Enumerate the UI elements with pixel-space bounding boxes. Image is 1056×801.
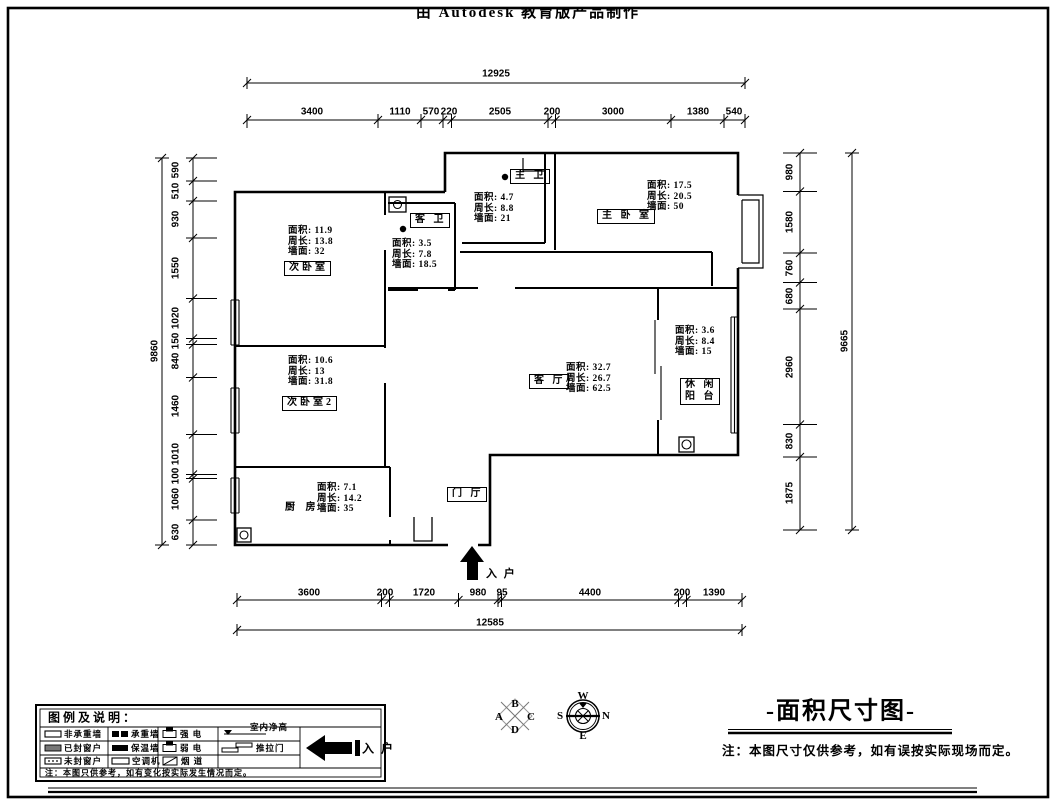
- bedroom2-label: 次卧室: [284, 261, 331, 276]
- dim-right-segment: 680: [785, 288, 796, 305]
- dim-right-segment: 760: [785, 260, 796, 277]
- dim-right-segment: 980: [785, 164, 796, 181]
- living-room-stats: 面积: 32.7 周长: 26.7 墙面: 62.5: [566, 363, 611, 395]
- dim-left-segment: 1060: [171, 488, 182, 510]
- sheet-title: -面积尺寸图-: [766, 691, 916, 726]
- dim-top-segment: 2505: [489, 107, 511, 118]
- master-bath-label: 主 卫: [510, 169, 550, 184]
- legend-item: 强 电: [180, 728, 202, 740]
- legend-item: 承重墙: [131, 728, 160, 740]
- quadrant-letter-b: B: [511, 698, 518, 710]
- legend-item: 非承重墙: [64, 728, 102, 740]
- foyer-label: 门 厅: [447, 487, 487, 502]
- legend-entry-arrow-icon: [306, 735, 360, 761]
- sealed-window-icon: [45, 745, 61, 751]
- legend-item: 已封窗户: [64, 742, 102, 754]
- legend-item: 保温墙: [131, 742, 160, 754]
- legend-item: 烟 道: [181, 755, 203, 767]
- drawing-sheet: 由 Autodesk 教育版产品制作 面积: 11.9 周长: 13.8 墙面:…: [0, 0, 1056, 801]
- dim-top-segment: 220: [441, 107, 458, 118]
- dim-top-segment: 570: [423, 107, 440, 118]
- bedroom2-stats: 面积: 11.9 周长: 13.8 墙面: 32: [288, 226, 333, 258]
- dim-left-segment: 630: [171, 524, 182, 541]
- guest-bath-stats: 面积: 3.5 周长: 7.8 墙面: 18.5: [392, 239, 437, 271]
- kitchen-stats: 面积: 7.1 周长: 14.2 墙面: 35: [317, 483, 362, 515]
- ac-unit-icon: [112, 758, 129, 764]
- insulated-wall-icon: [112, 745, 128, 751]
- quadrant-letter-d: D: [511, 724, 519, 736]
- entry-label: 入 户: [486, 565, 517, 581]
- dim-top-segment: 3400: [301, 107, 323, 118]
- dim-top-segment: 3000: [602, 107, 624, 118]
- dim-left-segment: 590: [171, 162, 182, 179]
- dim-left-segment: 100: [171, 468, 182, 485]
- dim-bottom-segment: 200: [377, 588, 394, 599]
- dim-right-segment: 2960: [785, 356, 796, 378]
- master-bath-stats: 面积: 4.7 周长: 8.8 墙面: 21: [474, 193, 514, 225]
- strong-electric-icon: [163, 728, 176, 738]
- legend-item: 空调机: [132, 755, 161, 767]
- dim-top-total: 12925: [482, 69, 510, 80]
- dim-left-segment: 1550: [171, 257, 182, 279]
- dim-top-segment: 200: [544, 107, 561, 118]
- dim-bottom-segment: 95: [496, 588, 507, 599]
- dim-bottom-segment: 4400: [579, 588, 601, 599]
- nonbearing-wall-icon: [45, 731, 61, 737]
- flue-icon: [163, 757, 177, 765]
- compass-letter-w: W: [578, 690, 589, 702]
- legend-item: 未封窗户: [64, 755, 102, 767]
- bedroom3-stats: 面积: 10.6 周长: 13 墙面: 31.8: [288, 356, 333, 388]
- weak-electric-icon: [163, 742, 176, 752]
- dim-top-segment: 1110: [389, 107, 410, 118]
- dim-right-segment: 1875: [785, 482, 796, 504]
- legend-item: 弱 电: [180, 742, 202, 754]
- dim-left-segment: 1010: [171, 443, 182, 465]
- dim-bottom-total: 12585: [476, 618, 504, 629]
- dim-left-segment: 930: [171, 211, 182, 228]
- dim-bottom-segment: 1720: [413, 588, 435, 599]
- sliding-door-icon: [222, 743, 252, 752]
- legend-note: 注：本图只供参考，如有变化按实际发生情况而定。: [45, 768, 252, 779]
- dim-left-segment: 510: [171, 183, 182, 200]
- dim-left-total: 9860: [150, 340, 161, 362]
- compass-letter-e: E: [579, 730, 586, 742]
- floorplan-linework: [0, 0, 1056, 801]
- dim-right-segment: 1580: [785, 211, 796, 233]
- kitchen-label: 厨 房: [285, 498, 320, 513]
- dimension-lines: [155, 77, 859, 636]
- unsealed-window-icon: [45, 758, 61, 764]
- dim-right-segment: 830: [785, 433, 796, 450]
- dim-top-segment: 540: [726, 107, 743, 118]
- autodesk-banner: 由 Autodesk 教育版产品制作: [416, 8, 640, 20]
- entry-arrow: [460, 546, 484, 580]
- dim-top-segment: 1380: [687, 107, 709, 118]
- legend-entry-label: 入 户: [362, 740, 395, 757]
- dim-bottom-segment: 1390: [703, 588, 725, 599]
- legend-item: 推拉门: [256, 742, 285, 754]
- dim-bottom-segment: 200: [674, 588, 691, 599]
- sheet-note: 注：本图尺寸仅供参考，如有误按实际现场而定。: [722, 740, 1019, 759]
- master-bedroom-label: 主 卧 室: [597, 209, 655, 224]
- dim-left-segment: 1460: [171, 395, 182, 417]
- quadrant-letter-a: A: [495, 711, 503, 723]
- dim-bottom-segment: 3600: [298, 588, 320, 599]
- bedroom3-label: 次卧室2: [282, 396, 337, 411]
- dim-left-segment: 840: [171, 353, 182, 370]
- dim-right-total: 9665: [840, 330, 851, 352]
- compass-letter-s: S: [557, 710, 563, 722]
- dim-bottom-segment: 980: [470, 588, 487, 599]
- master-bedroom-stats: 面积: 17.5 周长: 20.5 墙面: 50: [647, 181, 692, 213]
- legend-title: 图例及说明：: [48, 709, 138, 726]
- living-room-label: 客 厅: [529, 374, 569, 389]
- autodesk-banner-text: 由 Autodesk 教育版产品制作: [416, 8, 640, 20]
- balcony-label: 休 闲 阳 台: [680, 378, 720, 405]
- balcony-stats: 面积: 3.6 周长: 8.4 墙面: 15: [675, 326, 715, 358]
- guest-bath-label: 客 卫: [410, 213, 450, 228]
- dim-left-segment: 150: [171, 333, 182, 350]
- bearing-wall-icon: [112, 731, 128, 737]
- page-frame: [8, 8, 1048, 797]
- dim-left-segment: 1020: [171, 307, 182, 329]
- quadrant-letter-c: C: [527, 711, 535, 723]
- legend-item: 室内净高: [250, 721, 288, 733]
- compass-letter-n: N: [602, 710, 610, 722]
